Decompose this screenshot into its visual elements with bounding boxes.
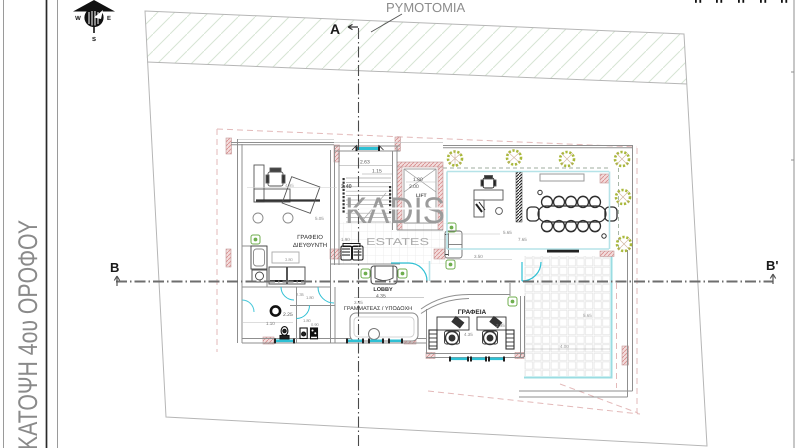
svg-text:7.65: 7.65 bbox=[518, 237, 527, 242]
svg-text:ESTATES: ESTATES bbox=[366, 237, 429, 248]
svg-text:4.95: 4.95 bbox=[285, 183, 294, 188]
svg-text:2.63: 2.63 bbox=[360, 160, 370, 166]
svg-text:2.35: 2.35 bbox=[296, 292, 305, 297]
svg-text:ΚΑΤΟΨΗ 4ου ΟΡΟΦΟΥ: ΚΑΤΟΨΗ 4ου ΟΡΟΦΟΥ bbox=[13, 220, 43, 448]
svg-text:B': B' bbox=[766, 258, 778, 273]
svg-text:B: B bbox=[110, 260, 119, 275]
svg-text:5.65: 5.65 bbox=[503, 230, 512, 235]
svg-text:5.05: 5.05 bbox=[315, 216, 324, 221]
svg-text:1.90: 1.90 bbox=[341, 237, 350, 242]
svg-text:5.65: 5.65 bbox=[583, 313, 592, 318]
svg-text:ΔΙΕΥΘΥΝΤΗ: ΔΙΕΥΘΥΝΤΗ bbox=[293, 242, 327, 249]
svg-text:1.80: 1.80 bbox=[306, 295, 315, 300]
svg-text:3.50: 3.50 bbox=[474, 254, 483, 259]
svg-text:4.35: 4.35 bbox=[464, 332, 473, 337]
svg-text:2.95: 2.95 bbox=[496, 323, 505, 328]
svg-text:LOBBY: LOBBY bbox=[373, 287, 393, 293]
svg-text:KΛDIS: KΛDIS bbox=[345, 190, 445, 231]
svg-text:1.10: 1.10 bbox=[266, 321, 275, 326]
svg-text:4.00: 4.00 bbox=[560, 344, 569, 349]
svg-text:A: A bbox=[330, 21, 340, 37]
svg-text:ΓΡΑΦΕΙΟ: ΓΡΑΦΕΙΟ bbox=[297, 234, 323, 241]
svg-text:S: S bbox=[92, 36, 96, 43]
svg-text:ΓΡΑΜΜΑΤΕΑΣ / ΥΠΟΔΟΧΗ: ΓΡΑΜΜΑΤΕΑΣ / ΥΠΟΔΟΧΗ bbox=[344, 306, 412, 312]
svg-text:4.35: 4.35 bbox=[376, 294, 386, 300]
svg-text:ΡΥΜΟΤΟΜΙΑ: ΡΥΜΟΤΟΜΙΑ bbox=[386, 0, 466, 15]
svg-text:W: W bbox=[75, 15, 81, 22]
svg-text:1.80: 1.80 bbox=[413, 177, 423, 183]
svg-text:2.25: 2.25 bbox=[283, 312, 293, 318]
svg-text:E: E bbox=[107, 15, 111, 22]
svg-text:1.15: 1.15 bbox=[372, 169, 382, 175]
svg-text:3.80: 3.80 bbox=[285, 257, 294, 262]
svg-text:ΓΡΑΦΕΙΑ: ΓΡΑΦΕΙΑ bbox=[458, 309, 487, 316]
svg-text:0.90: 0.90 bbox=[311, 322, 320, 327]
